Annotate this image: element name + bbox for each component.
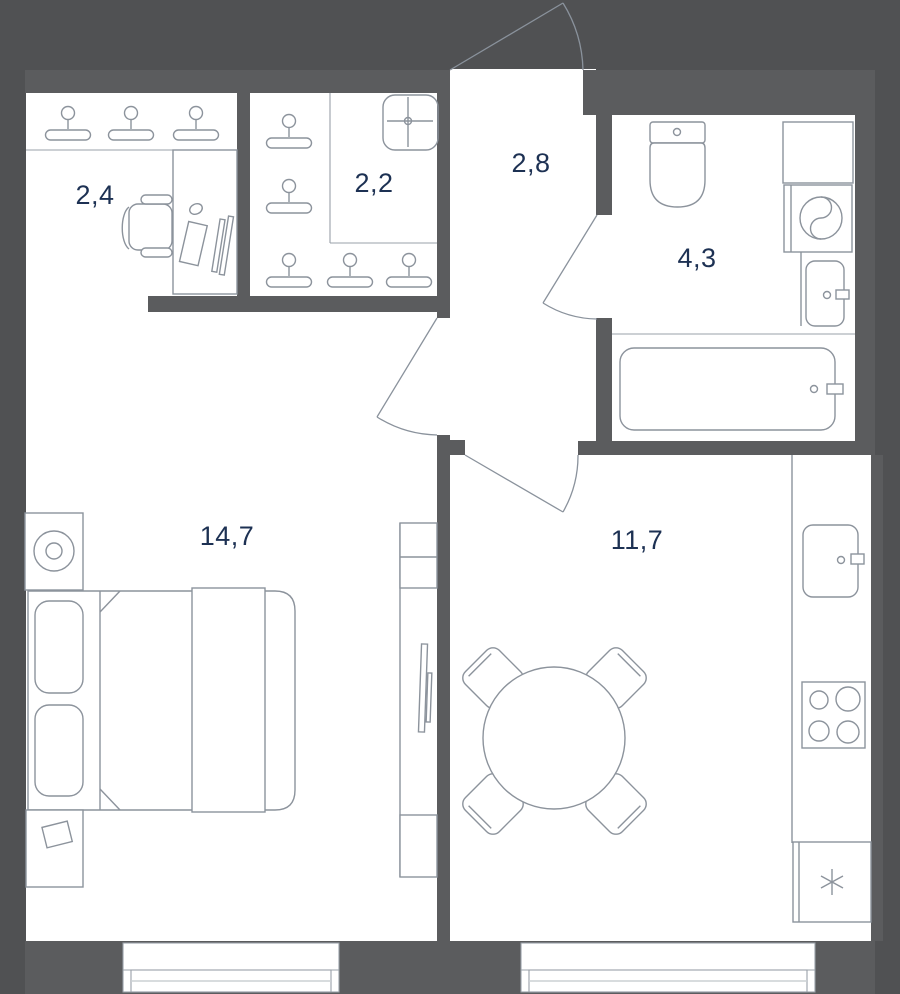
nightstand-top	[25, 513, 83, 590]
wall	[596, 318, 612, 455]
pillow	[35, 705, 83, 796]
area-label-kitchen: 11,7	[611, 525, 664, 555]
wall	[237, 93, 250, 296]
area-label-closet: 2,2	[354, 168, 393, 198]
dining-table	[483, 667, 625, 809]
fridge-icon	[793, 842, 871, 922]
area-label-hallway: 2,8	[511, 148, 550, 178]
wall	[437, 435, 450, 941]
double-bed	[28, 588, 295, 812]
area-label-bedroom: 14,7	[200, 521, 255, 551]
wall	[25, 70, 450, 93]
cooktop-icon	[802, 682, 865, 748]
dining-set	[459, 644, 650, 838]
nightstand-bottom	[26, 810, 83, 887]
area-label-bathroom: 4,3	[677, 243, 716, 273]
toilet-icon	[650, 122, 705, 207]
washing-machine-icon	[784, 185, 852, 252]
bathtub-icon	[620, 348, 843, 430]
wall	[578, 441, 875, 455]
wall	[855, 115, 875, 455]
pillow	[35, 601, 83, 693]
floor-plan: 2,4 2,2 2,8 4,3 14,7 11,7	[0, 0, 900, 994]
wall	[871, 455, 883, 941]
wall	[450, 440, 465, 455]
blanket	[192, 588, 265, 812]
window-kitchen	[521, 943, 815, 992]
wall	[148, 296, 450, 312]
floor-plan-canvas: 2,4 2,2 2,8 4,3 14,7 11,7	[0, 0, 900, 994]
window-bedroom	[123, 943, 339, 992]
bathroom-sink-icon	[806, 261, 849, 326]
wall	[583, 70, 875, 115]
wall	[437, 93, 450, 318]
bathroom-counter	[783, 122, 853, 183]
kitchen-sink-icon	[803, 525, 864, 597]
area-label-dressing: 2,4	[75, 180, 114, 210]
wall	[596, 70, 612, 215]
